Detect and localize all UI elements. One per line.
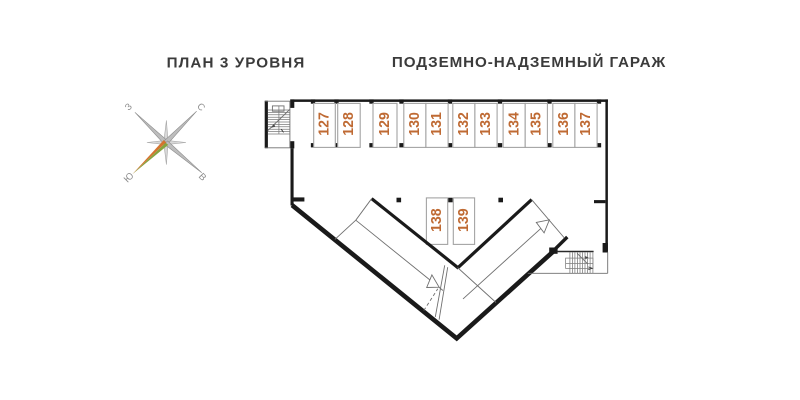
svg-text:З: З [123,101,135,113]
svg-text:ПОДЗЕМНО-НАДЗЕМНЫЙ ГАРАЖ: ПОДЗЕМНО-НАДЗЕМНЫЙ ГАРАЖ [392,53,666,71]
svg-text:Ю: Ю [122,170,137,185]
svg-text:В: В [196,171,208,183]
svg-text:133: 133 [478,112,494,136]
svg-text:138: 138 [429,208,445,232]
svg-text:128: 128 [341,112,357,136]
svg-text:ПЛАН 3 УРОВНЯ: ПЛАН 3 УРОВНЯ [167,55,306,72]
svg-text:129: 129 [377,112,393,136]
svg-text:134: 134 [506,112,522,136]
svg-text:132: 132 [456,112,472,136]
svg-text:127: 127 [316,112,332,136]
svg-text:137: 137 [578,112,594,136]
svg-text:131: 131 [429,112,445,136]
svg-text:130: 130 [407,112,423,136]
svg-text:139: 139 [456,208,472,232]
svg-text:135: 135 [528,112,544,136]
svg-text:136: 136 [556,112,572,136]
